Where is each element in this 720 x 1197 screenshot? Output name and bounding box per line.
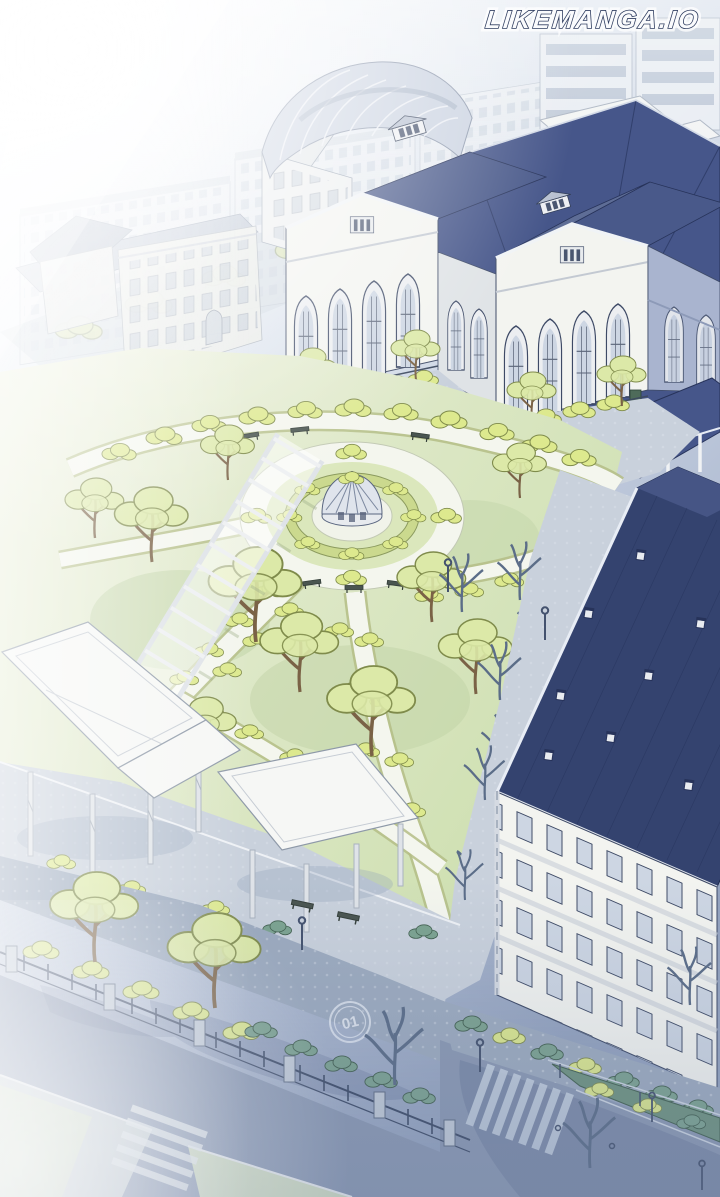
campus-illustration: 01 LIKEMANGA.IO LIKEMANGA.IO [0, 0, 720, 1197]
svg-text:LIKEMANGA.IO: LIKEMANGA.IO [484, 6, 701, 34]
site-watermark: LIKEMANGA.IO LIKEMANGA.IO [484, 6, 701, 34]
manhwa-page: 01 LIKEMANGA.IO LIKEMANGA.IO [0, 0, 720, 1197]
sunlight-glare [0, 0, 720, 1197]
